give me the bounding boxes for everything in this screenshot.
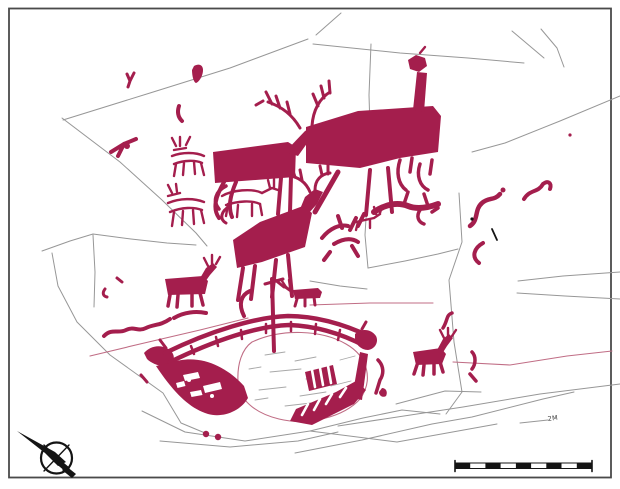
crack-length-label: 2M <box>547 414 558 423</box>
panel-canvas: 2M <box>0 0 620 489</box>
rock-art-panel-drawing: 2M <box>0 0 620 489</box>
mast <box>272 279 274 351</box>
